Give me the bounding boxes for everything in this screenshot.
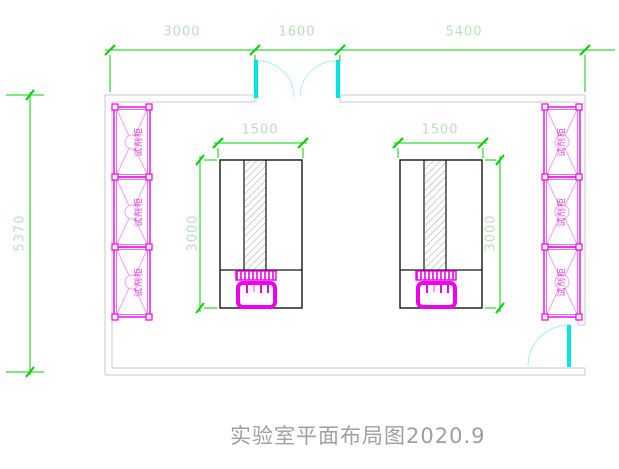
dim-bench-left-width: 1500 xyxy=(241,123,278,138)
cabinet-label: 试剂柜 xyxy=(132,127,145,157)
dim-bench-left-height: 3000 xyxy=(186,214,201,251)
door-leaf xyxy=(567,325,571,367)
dim-top-left: 3000 xyxy=(163,25,200,40)
floorplan-drawing xyxy=(0,0,619,469)
dim-overall-height: 5370 xyxy=(13,214,28,251)
dim-bench-right-width: 1500 xyxy=(421,123,458,138)
lab-bench-left xyxy=(220,160,302,308)
room-walls xyxy=(105,95,585,375)
dim-top-right: 5400 xyxy=(445,25,482,40)
lab-bench-right xyxy=(400,160,482,308)
dim-bench-right-height: 3000 xyxy=(484,214,499,251)
dim-top-mid: 1600 xyxy=(278,25,315,40)
door-leaf-left xyxy=(254,60,258,98)
cad-floorplan-canvas: 3000 1600 5400 5370 1500 1500 3000 3000 … xyxy=(0,0,619,469)
cabinet-label: 试剂柜 xyxy=(132,197,145,227)
double-door-top xyxy=(254,60,340,98)
drawing-title: 实验室平面布局图2020.9 xyxy=(230,420,485,450)
cabinet-label: 试剂柜 xyxy=(555,197,568,227)
single-door-right xyxy=(528,325,571,367)
cabinet-label: 试剂柜 xyxy=(132,267,145,297)
cabinet-label: 试剂柜 xyxy=(555,267,568,297)
bench-hatch-strip xyxy=(245,161,266,269)
cabinet-label: 试剂柜 xyxy=(555,127,568,157)
door-leaf-right xyxy=(336,60,340,98)
bench-hatch-strip xyxy=(425,161,446,269)
